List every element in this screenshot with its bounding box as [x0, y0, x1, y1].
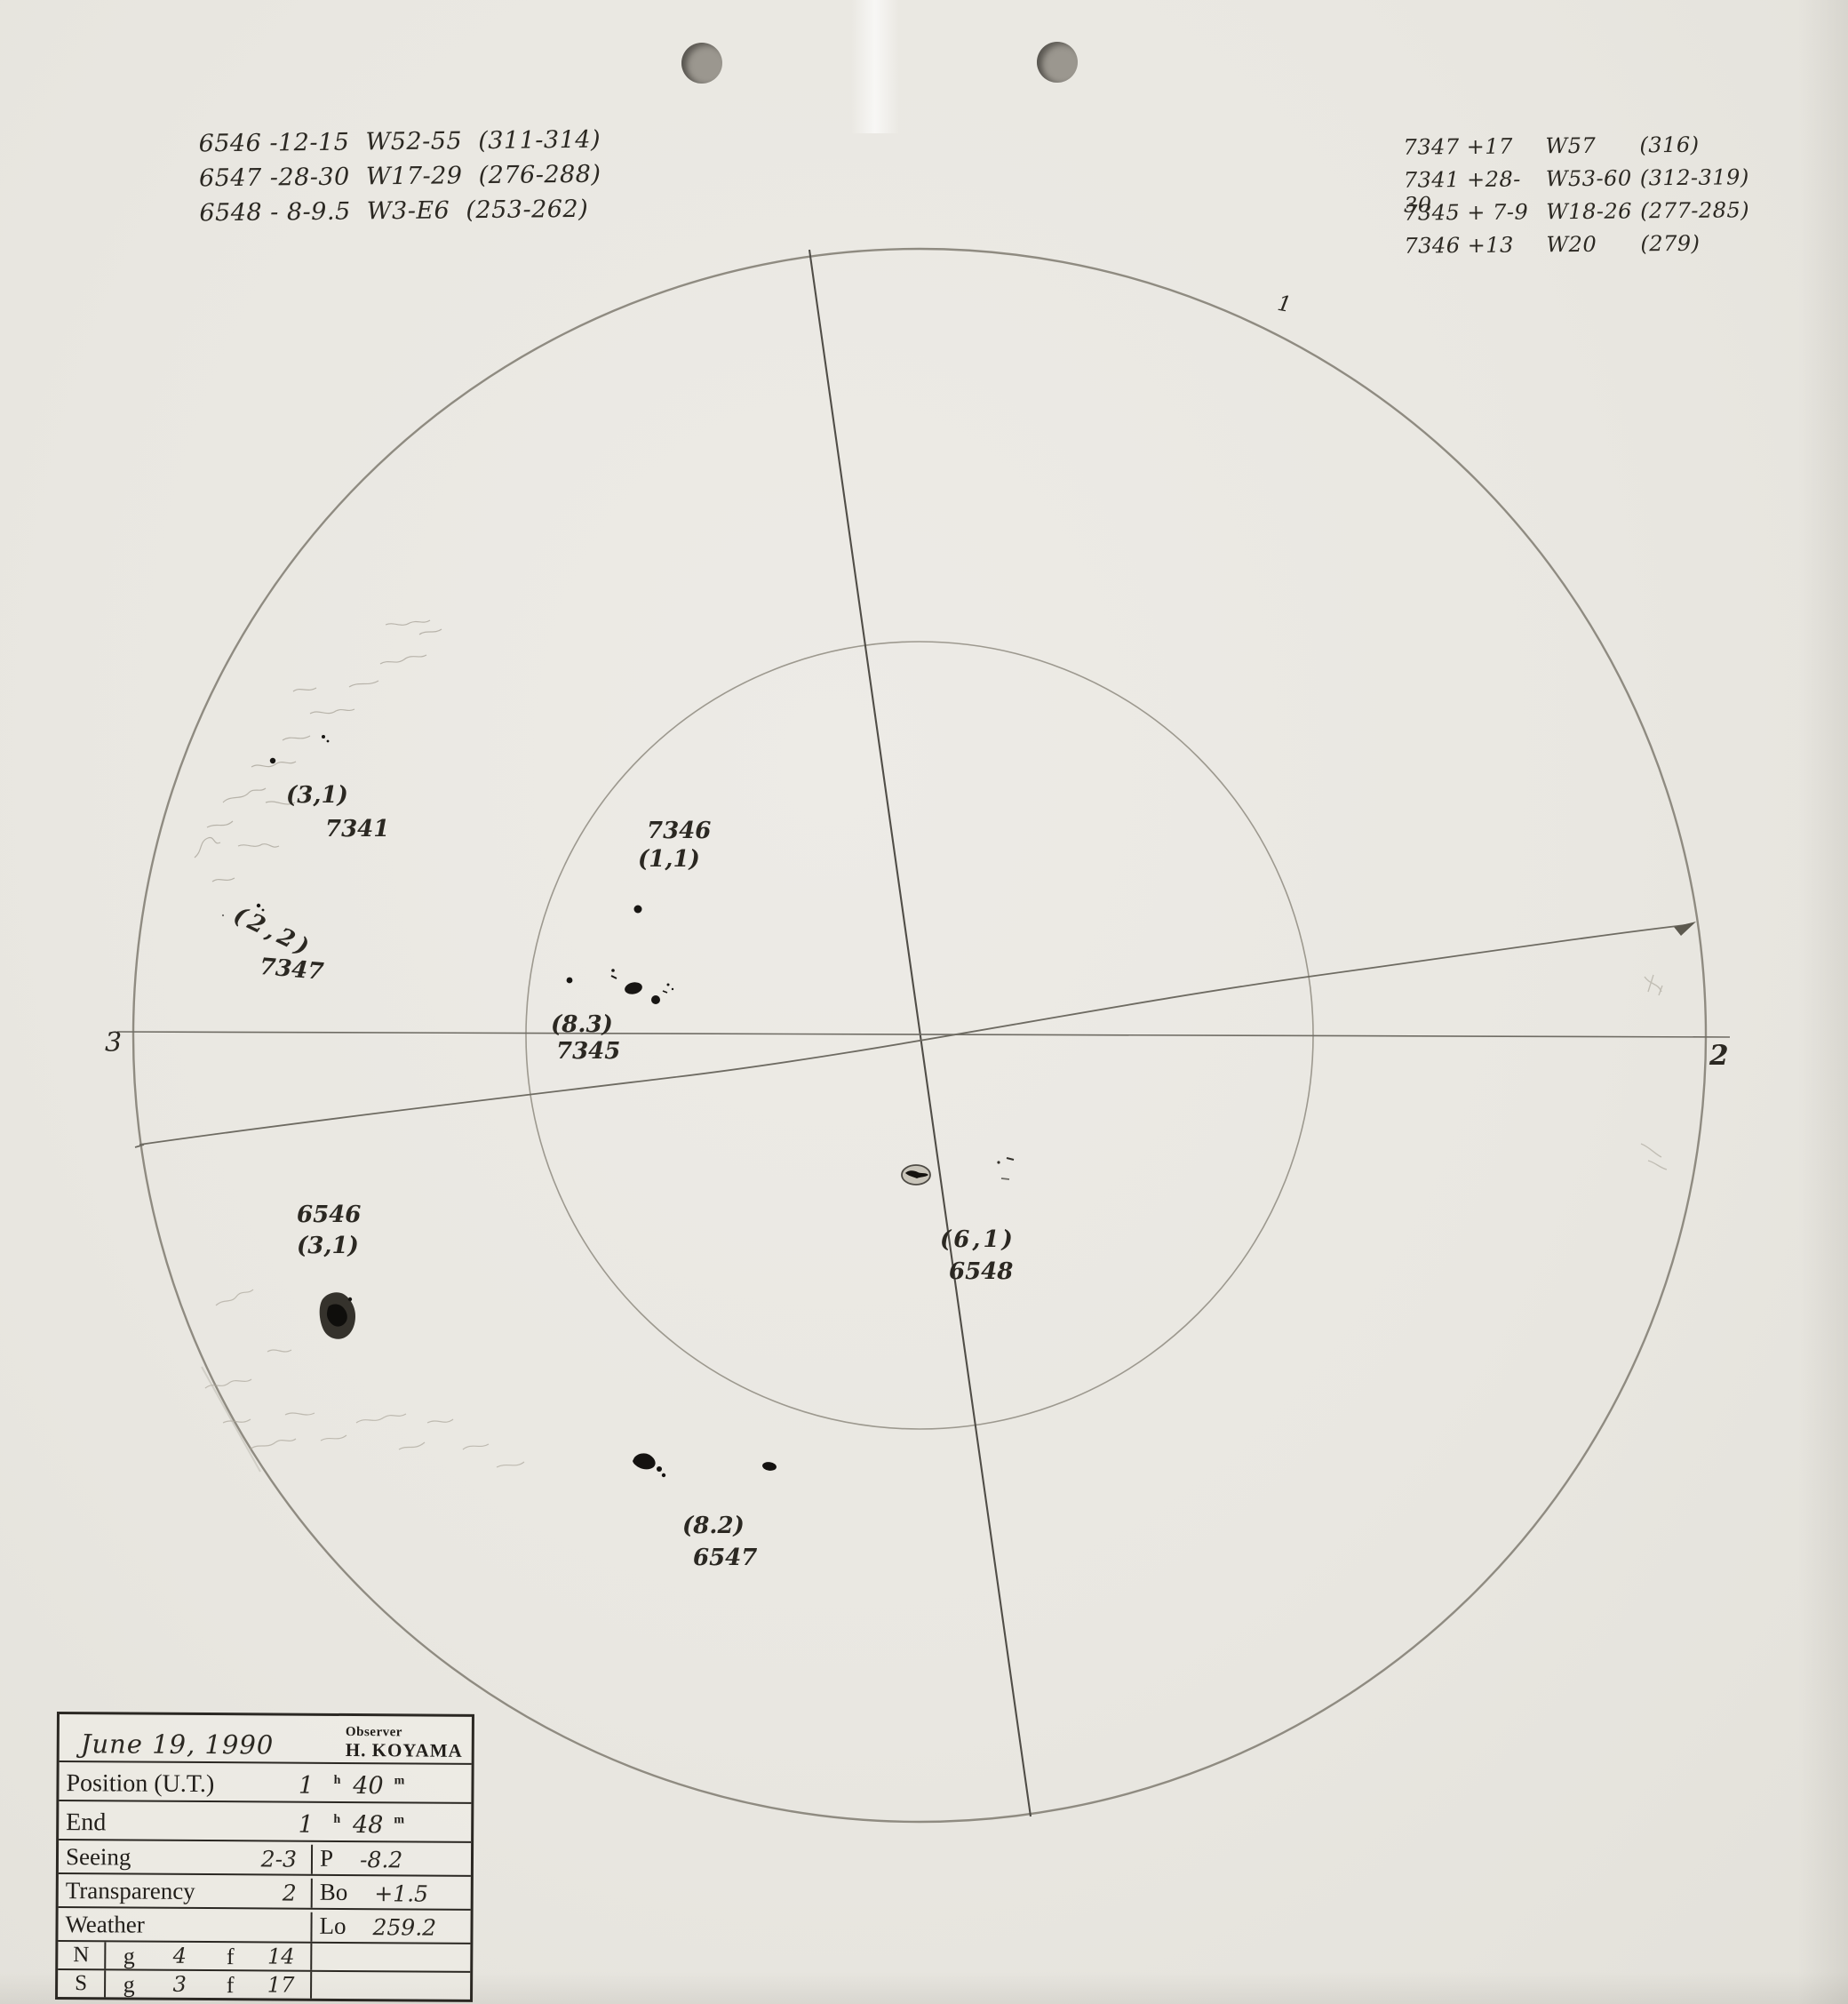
annotation-line: 6548 - 8-9.5 W3-E6 (253-262) [199, 192, 601, 231]
p-angle-label: P [320, 1845, 333, 1872]
date-value: June 19, 1990 [81, 1729, 275, 1760]
groups-label: g [106, 1971, 152, 1997]
table-row-weather: Weather Lo 259.2 [58, 1906, 470, 1943]
south-spots-value: 17 [253, 1972, 308, 1998]
orientation-mark-left: 3 [105, 1027, 122, 1058]
annotation-block-top-right: 7347 +17 W57 (316) 7341 +28-30 W53-60 (3… [1403, 132, 1749, 266]
observer-block: Observer H. KOYAMA [346, 1726, 463, 1761]
group-6547-count-label: (8.2) [682, 1513, 745, 1539]
table-row-date: June 19, 1990 Observer H. KOYAMA [60, 1714, 472, 1763]
seeing-value: 2-3 [261, 1846, 297, 1872]
equator-arrowhead [1674, 922, 1696, 936]
orientation-mark-right: 2 [1709, 1040, 1729, 1072]
annotation-row: 7345 + 7-9 W18-26 (277-285) [1404, 197, 1749, 233]
l0-label: Lo [319, 1912, 346, 1940]
group-7341-id-label: 7341 [325, 816, 389, 842]
position-minute-value: 40 [348, 1772, 387, 1800]
group-6548-id-label: 6548 [949, 1258, 1013, 1285]
end-minute-value: 48 [348, 1811, 387, 1839]
table-row-transparency: Transparency 2 Bo +1.5 [59, 1872, 471, 1909]
group-7345-id-label: 7345 [556, 1038, 620, 1065]
spots-label: f [207, 1944, 253, 1969]
transparency-label: Transparency [66, 1877, 195, 1905]
b0-value: +1.5 [374, 1880, 428, 1906]
sunspot-group-6547-spots [633, 1453, 777, 1477]
horizontal-diameter-line [117, 1032, 1730, 1037]
l0-value: 259.2 [372, 1914, 436, 1940]
group-7346-count-label: (1,1) [638, 846, 700, 873]
minute-unit: m [387, 1772, 410, 1788]
position-label: Position (U.T.) [66, 1769, 214, 1799]
b0-label: Bo [320, 1879, 348, 1906]
sunspot-group-7341-spots [270, 735, 330, 763]
north-groups-value: 4 [152, 1944, 207, 1969]
weather-label: Weather [65, 1911, 144, 1939]
table-row-position: Position (U.T.) 1 h 40 m [59, 1760, 471, 1802]
faculae-region-northeast [195, 620, 442, 882]
group-7345-count-label: (8.3) [551, 1011, 613, 1038]
north-spots-value: 14 [253, 1944, 308, 1969]
group-6546-count-label: (3,1) [297, 1233, 359, 1259]
end-label: End [66, 1808, 106, 1837]
group-6548-count-label: (6,1) [940, 1226, 1016, 1253]
meridian-line [809, 250, 1031, 1816]
group-6547-id-label: 6547 [693, 1545, 757, 1571]
scanned-sunspot-observation-sheet: { "annotations": { "top_left": [ "6546 -… [0, 0, 1848, 2004]
empty-cell [310, 1944, 470, 1971]
spots-label: f [207, 1972, 253, 1998]
end-hour-value: 1 [286, 1811, 325, 1839]
annotation-block-top-left: 6546 -12-15 W52-55 (311-314) 6547 -28-30… [198, 123, 601, 231]
group-7346-id-label: 7346 [647, 818, 711, 844]
sunspot-group-7345-spots [567, 969, 674, 1004]
seeing-label: Seeing [66, 1843, 131, 1871]
empty-cell [310, 1972, 470, 2000]
annotation-line: 6546 -12-15 W52-55 (311-314) [198, 123, 601, 162]
sunspot-group-6546-spots [320, 1292, 355, 1338]
sunspot-group-6548-spots [902, 1158, 1014, 1185]
position-hour-value: 1 [286, 1772, 325, 1800]
p-angle-value: -8.2 [360, 1847, 402, 1872]
hour-unit: h [325, 1811, 348, 1827]
observer-name: H. KOYAMA [346, 1740, 463, 1760]
observation-table: June 19, 1990 Observer H. KOYAMA Positio… [55, 1712, 474, 2002]
equator-end-tick [135, 1145, 144, 1147]
group-6546-id-label: 6546 [297, 1202, 361, 1228]
table-row-end: End 1 h 48 m [59, 1800, 471, 1841]
south-label: S [58, 1970, 106, 1997]
north-label: N [58, 1942, 106, 1968]
south-groups-value: 3 [152, 1972, 207, 1998]
groups-label: g [106, 1943, 152, 1968]
minute-unit: m [387, 1811, 410, 1827]
group-7341-count-label: (3,1) [286, 782, 348, 809]
annotation-row: 7341 +28-30 W53-60 (312-319) [1404, 164, 1749, 200]
annotation-row: 7347 +17 W57 (316) [1403, 132, 1748, 167]
sunspot-group-7346-spot [634, 906, 642, 914]
faculae-region-southeast [202, 1289, 524, 1472]
sun-drawing-canvas [0, 0, 1848, 2004]
hour-unit: h [325, 1772, 348, 1788]
table-row-seeing: Seeing 2-3 P -8.2 [59, 1839, 471, 1875]
transparency-value: 2 [283, 1880, 297, 1906]
group-7347-id-label: 7347 [259, 954, 325, 986]
table-row-south-counts: S g 3 f 17 [58, 1968, 470, 2000]
table-row-north-counts: N g 4 f 14 [58, 1940, 470, 1971]
annotation-row: 7346 +13 W20 (279) [1404, 230, 1749, 266]
faint-limb-marks-west [1641, 975, 1667, 1170]
annotation-line: 6547 -28-30 W17-29 (276-288) [199, 157, 601, 196]
